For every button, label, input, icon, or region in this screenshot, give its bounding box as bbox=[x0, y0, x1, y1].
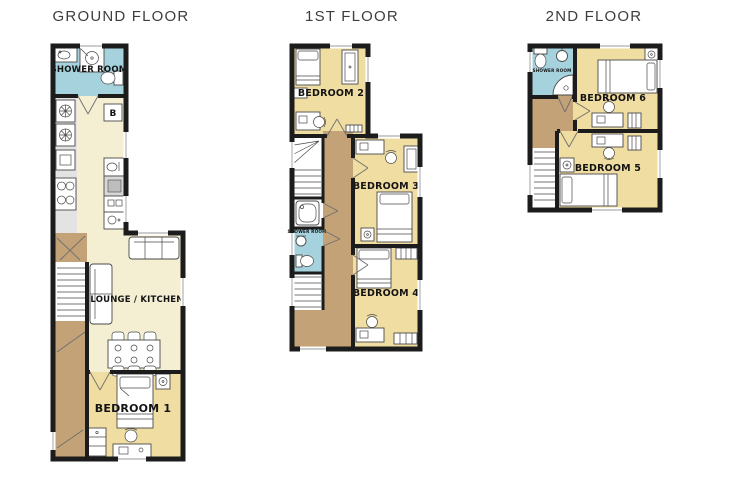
pillow bbox=[120, 377, 150, 388]
washing-machine-icon bbox=[56, 100, 75, 122]
bed-icon bbox=[117, 374, 153, 428]
pillow bbox=[359, 250, 389, 259]
desk-icon bbox=[592, 134, 623, 147]
lounge-kitchen-label: LOUNGE / KITCHEN bbox=[90, 295, 183, 305]
oven-icon bbox=[104, 176, 126, 196]
bedroom6-label: BEDROOM 6 bbox=[580, 93, 646, 104]
ground-floor-plan: GROUND FLOOR SHOWER ROOM bbox=[51, 8, 190, 462]
kitchen-sink-icon bbox=[104, 158, 126, 176]
bedroom5-label: BEDROOM 5 bbox=[575, 163, 641, 174]
ground-stairs-area bbox=[55, 262, 85, 321]
ground-floor-title: GROUND FLOOR bbox=[53, 8, 190, 25]
bedroom2-label: BEDROOM 2 bbox=[298, 88, 364, 99]
sink-icon bbox=[296, 236, 306, 246]
bedroom4-label: BEDROOM 4 bbox=[353, 288, 419, 299]
bath-icon bbox=[296, 201, 319, 225]
floorplan-canvas: GROUND FLOOR SHOWER ROOM bbox=[0, 0, 750, 502]
first-floor-plan: 1ST FLOOR BEDROOM 2 bbox=[288, 8, 423, 352]
second-stairs-area bbox=[532, 148, 555, 208]
pillow bbox=[380, 194, 409, 204]
wardrobe-icon bbox=[404, 146, 419, 172]
speaker-icon bbox=[560, 158, 574, 172]
floorplan-page: GROUND FLOOR SHOWER ROOM bbox=[0, 0, 750, 502]
radiator-icon bbox=[396, 248, 417, 259]
bed-icon bbox=[377, 192, 412, 242]
bed-icon bbox=[560, 174, 617, 206]
second-floor-plan: 2ND FLOOR SHOWER ROOM bbox=[528, 8, 663, 213]
boiler-icon: B bbox=[104, 104, 122, 121]
radiator-icon bbox=[628, 113, 641, 128]
speaker-icon bbox=[156, 374, 170, 389]
toilet-icon bbox=[534, 48, 547, 68]
drawers-icon bbox=[88, 428, 106, 456]
hob-icon bbox=[55, 178, 76, 210]
radiator-icon bbox=[628, 136, 641, 150]
bed-icon bbox=[296, 49, 320, 85]
second-floor-title: 2ND FLOOR bbox=[546, 8, 643, 25]
bed-icon bbox=[357, 248, 391, 288]
microwave-icon bbox=[56, 150, 75, 170]
sink-icon bbox=[55, 48, 77, 62]
pillow bbox=[647, 63, 655, 90]
desk-icon bbox=[356, 140, 384, 154]
desk-icon bbox=[113, 444, 151, 457]
speaker-icon bbox=[361, 228, 374, 241]
radiator-icon bbox=[346, 125, 362, 132]
washing-machine-icon bbox=[56, 124, 75, 146]
sofa-icon bbox=[129, 237, 179, 259]
sofa-icon bbox=[90, 264, 112, 324]
bedroom1-label: BEDROOM 1 bbox=[95, 402, 171, 415]
radiator-icon bbox=[394, 333, 417, 344]
bed-icon bbox=[598, 60, 657, 93]
pillow bbox=[298, 51, 318, 60]
toilet-icon bbox=[296, 255, 314, 267]
dining-table-icon bbox=[108, 332, 160, 376]
boiler-unit-icon bbox=[645, 48, 658, 61]
pillow bbox=[562, 177, 572, 203]
second-shower-label: SHOWER ROOM bbox=[533, 68, 572, 73]
desk-icon bbox=[592, 113, 623, 127]
bedroom3-label: BEDROOM 3 bbox=[353, 181, 419, 192]
first-floor-title: 1ST FLOOR bbox=[305, 8, 399, 25]
first-stairs-down-area bbox=[292, 273, 323, 310]
wardrobe-icon bbox=[342, 50, 358, 84]
dishwasher-icon bbox=[104, 196, 126, 212]
desk-icon bbox=[356, 328, 384, 342]
ground-shower-label: SHOWER ROOM bbox=[51, 65, 128, 75]
fridge-icon bbox=[104, 212, 126, 229]
boiler-label: B bbox=[109, 109, 116, 119]
